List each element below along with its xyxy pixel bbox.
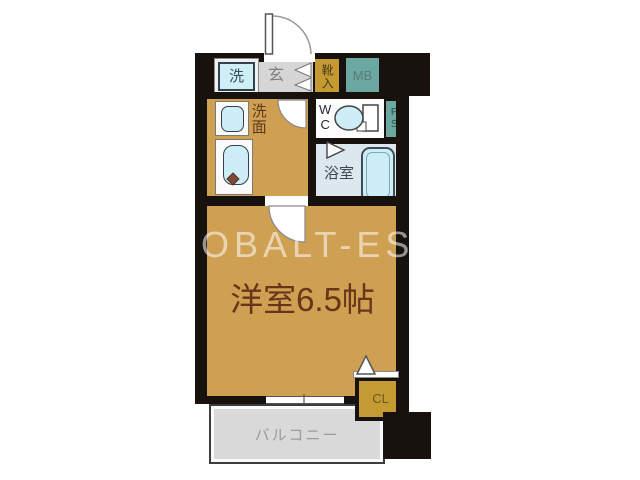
plan-symbols-overlay xyxy=(0,0,640,480)
closet-door-triangle xyxy=(357,356,375,374)
entrance-door-leaf xyxy=(266,14,273,54)
shoe-door-fan-bottom xyxy=(295,78,311,91)
drain-diamond-icon xyxy=(227,173,239,185)
washroom-door-swing xyxy=(278,100,306,128)
toilet-bowl-icon xyxy=(335,106,363,130)
bathroom-door-icon xyxy=(327,142,344,158)
main-room-door-swing xyxy=(269,206,305,242)
main-room-label: 洋室6.5帖 xyxy=(207,283,398,318)
shoe-door-fan-top xyxy=(295,63,311,77)
washroom-label: 洗面 xyxy=(250,103,266,135)
entrance-label: 玄 xyxy=(268,68,284,85)
floorplan-canvas: 洗 靴入 MB PS CL バルコニー xyxy=(0,0,640,480)
entrance-door-swing-arc xyxy=(273,16,311,54)
toilet-label: WC xyxy=(318,102,332,132)
bathroom-label: 浴室 xyxy=(324,166,354,182)
